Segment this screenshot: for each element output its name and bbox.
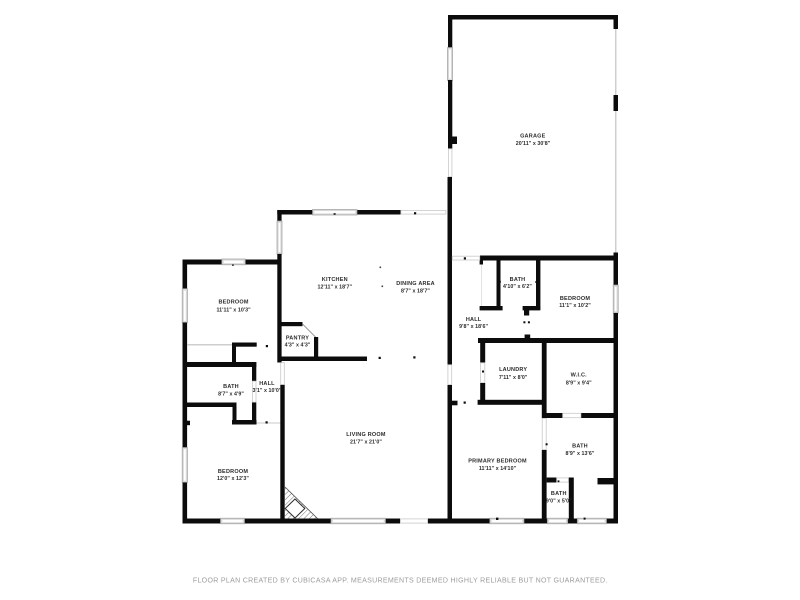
- svg-text:8'9" x 9'4": 8'9" x 9'4": [566, 381, 592, 387]
- svg-text:21'7" x 21'0": 21'7" x 21'0": [350, 440, 382, 446]
- svg-text:11'11" x 14'10": 11'11" x 14'10": [479, 466, 517, 472]
- svg-text:BEDROOM: BEDROOM: [560, 296, 590, 302]
- svg-text:BEDROOM: BEDROOM: [218, 299, 248, 305]
- svg-text:11'1" x 10'2": 11'1" x 10'2": [559, 303, 591, 309]
- svg-text:DINING AREA: DINING AREA: [396, 281, 435, 287]
- svg-text:HALL: HALL: [466, 317, 482, 323]
- svg-text:BATH: BATH: [510, 277, 526, 283]
- svg-text:7'11" x 8'0": 7'11" x 8'0": [499, 375, 528, 381]
- svg-text:GARAGE: GARAGE: [520, 133, 546, 139]
- svg-text:8'7" x 18'7": 8'7" x 18'7": [401, 289, 430, 295]
- svg-text:8'9" x 13'6": 8'9" x 13'6": [566, 451, 595, 457]
- svg-text:HALL: HALL: [259, 381, 275, 387]
- svg-text:PANTRY: PANTRY: [286, 335, 309, 341]
- svg-text:3'1" x 10'0": 3'1" x 10'0": [253, 388, 282, 394]
- svg-text:PRIMARY BEDROOM: PRIMARY BEDROOM: [468, 459, 527, 465]
- svg-text:4'3" x 4'3": 4'3" x 4'3": [285, 343, 311, 349]
- svg-text:11'11" x 10'3": 11'11" x 10'3": [216, 307, 251, 313]
- svg-text:BATH: BATH: [551, 491, 567, 497]
- svg-text:LAUNDRY: LAUNDRY: [499, 367, 527, 373]
- svg-text:12'0" x 12'3": 12'0" x 12'3": [217, 476, 249, 482]
- svg-text:BATH: BATH: [572, 444, 588, 450]
- svg-text:FLOOR PLAN CREATED BY CUBICASA: FLOOR PLAN CREATED BY CUBICASA APP. MEAS…: [193, 577, 608, 584]
- svg-text:4'10" x 6'2": 4'10" x 6'2": [503, 284, 532, 290]
- svg-text:9'8" x 18'6": 9'8" x 18'6": [459, 324, 488, 330]
- svg-text:20'11" x 30'8": 20'11" x 30'8": [516, 141, 551, 147]
- svg-text:LIVING ROOM: LIVING ROOM: [346, 432, 386, 438]
- svg-text:8'7" x 4'9": 8'7" x 4'9": [218, 391, 244, 397]
- svg-text:BATH: BATH: [223, 384, 239, 390]
- svg-text:9'0" x 5'0": 9'0" x 5'0": [546, 499, 572, 505]
- svg-text:W.I.C.: W.I.C.: [571, 373, 588, 379]
- svg-text:12'11" x 18'7": 12'11" x 18'7": [317, 284, 352, 290]
- svg-text:BEDROOM: BEDROOM: [218, 469, 248, 475]
- svg-text:KITCHEN: KITCHEN: [322, 277, 348, 283]
